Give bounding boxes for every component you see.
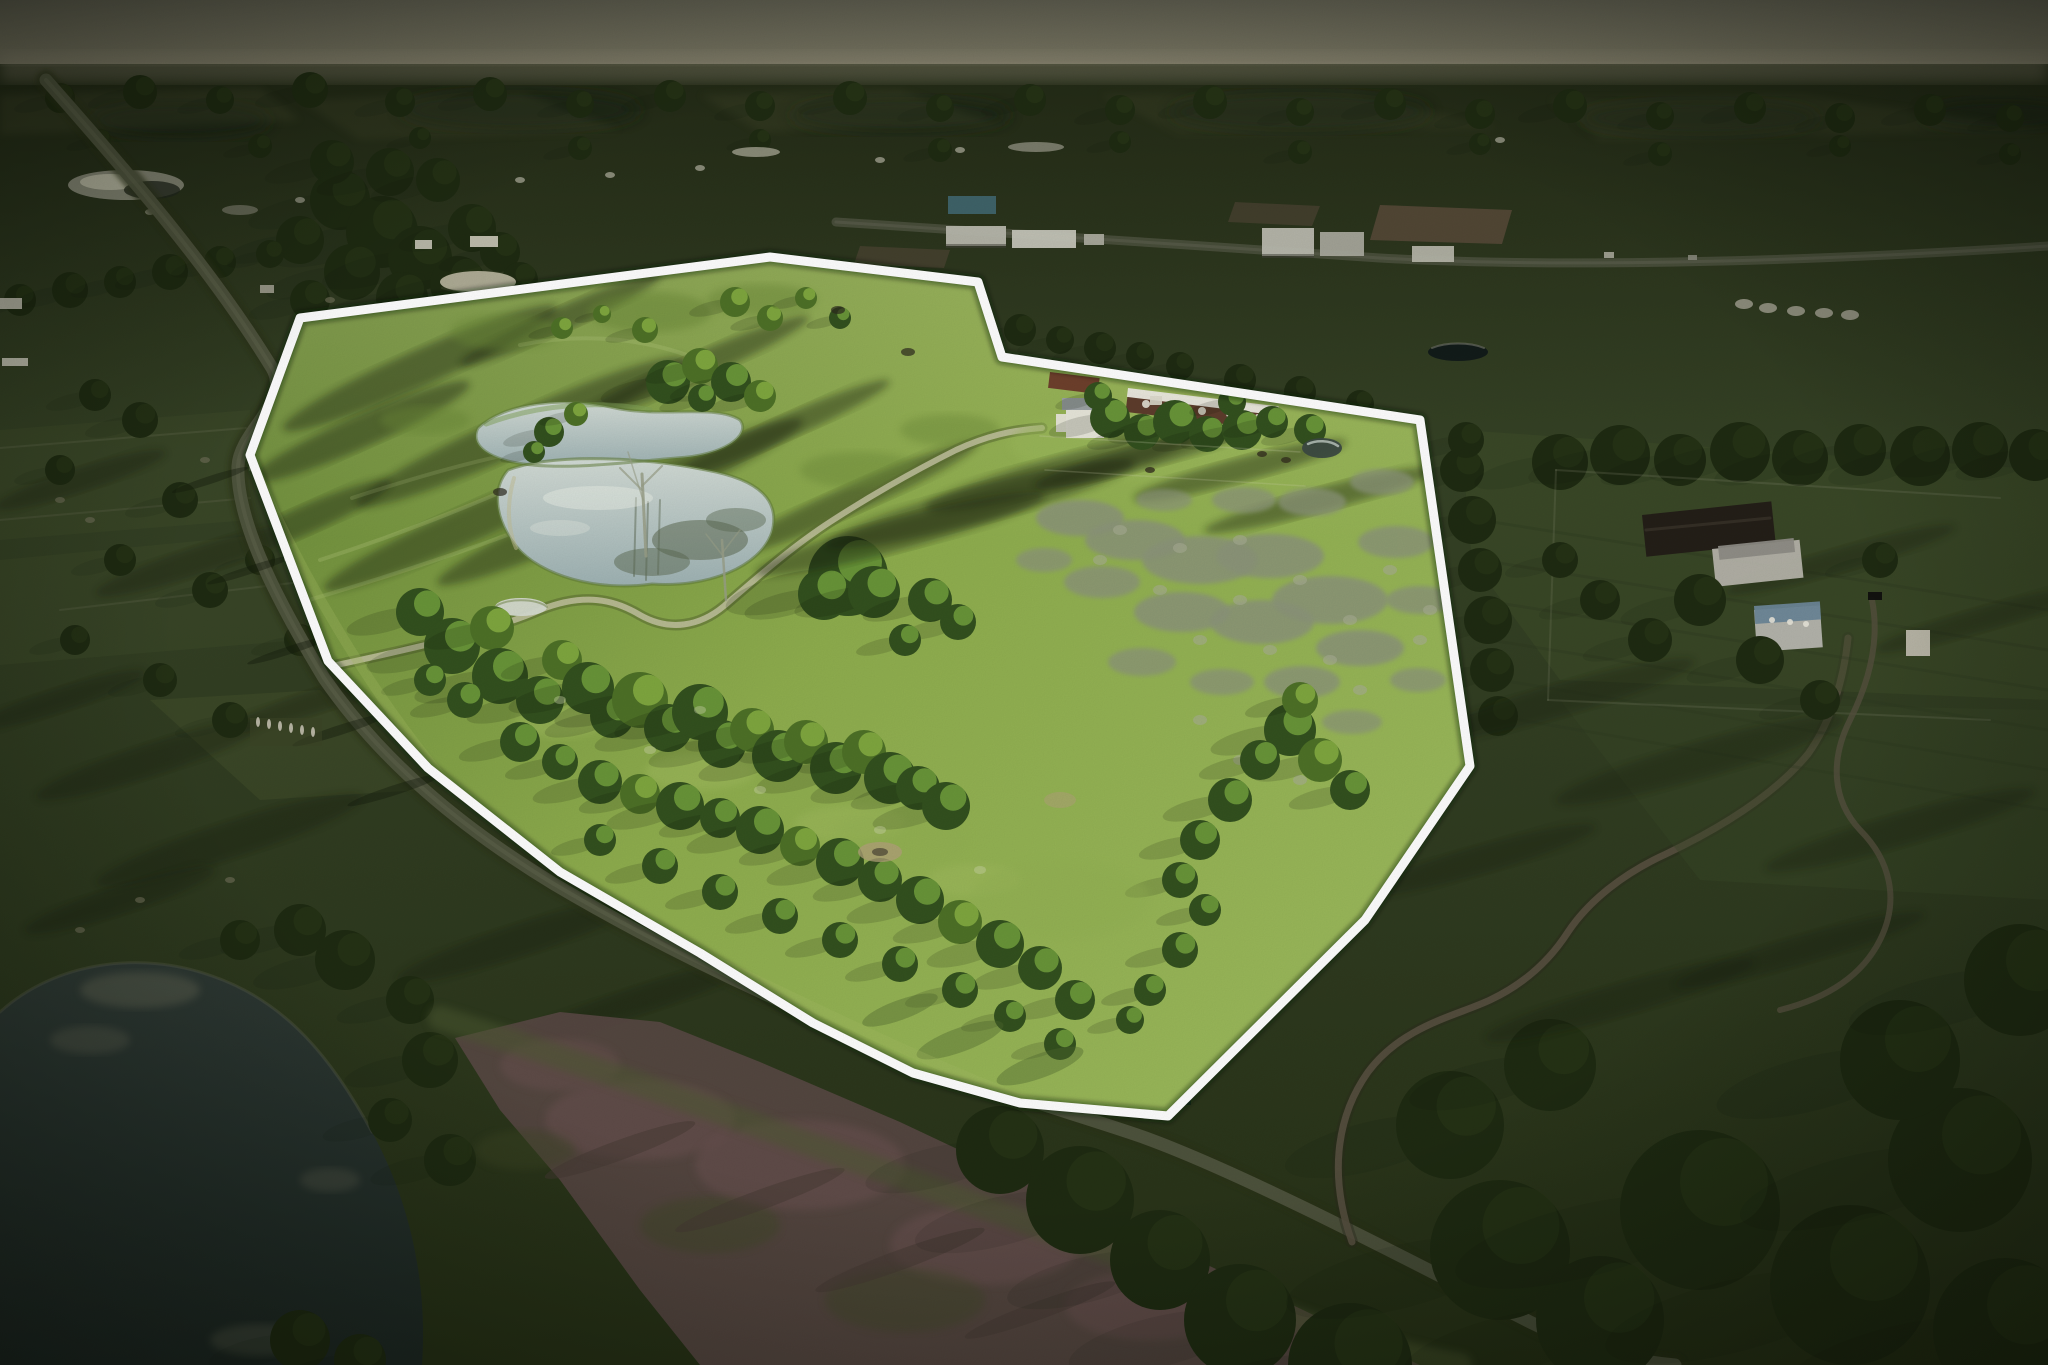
film-grain <box>0 0 2048 1365</box>
aerial-photo <box>0 0 2048 1365</box>
aerial-scene <box>0 0 2048 1365</box>
